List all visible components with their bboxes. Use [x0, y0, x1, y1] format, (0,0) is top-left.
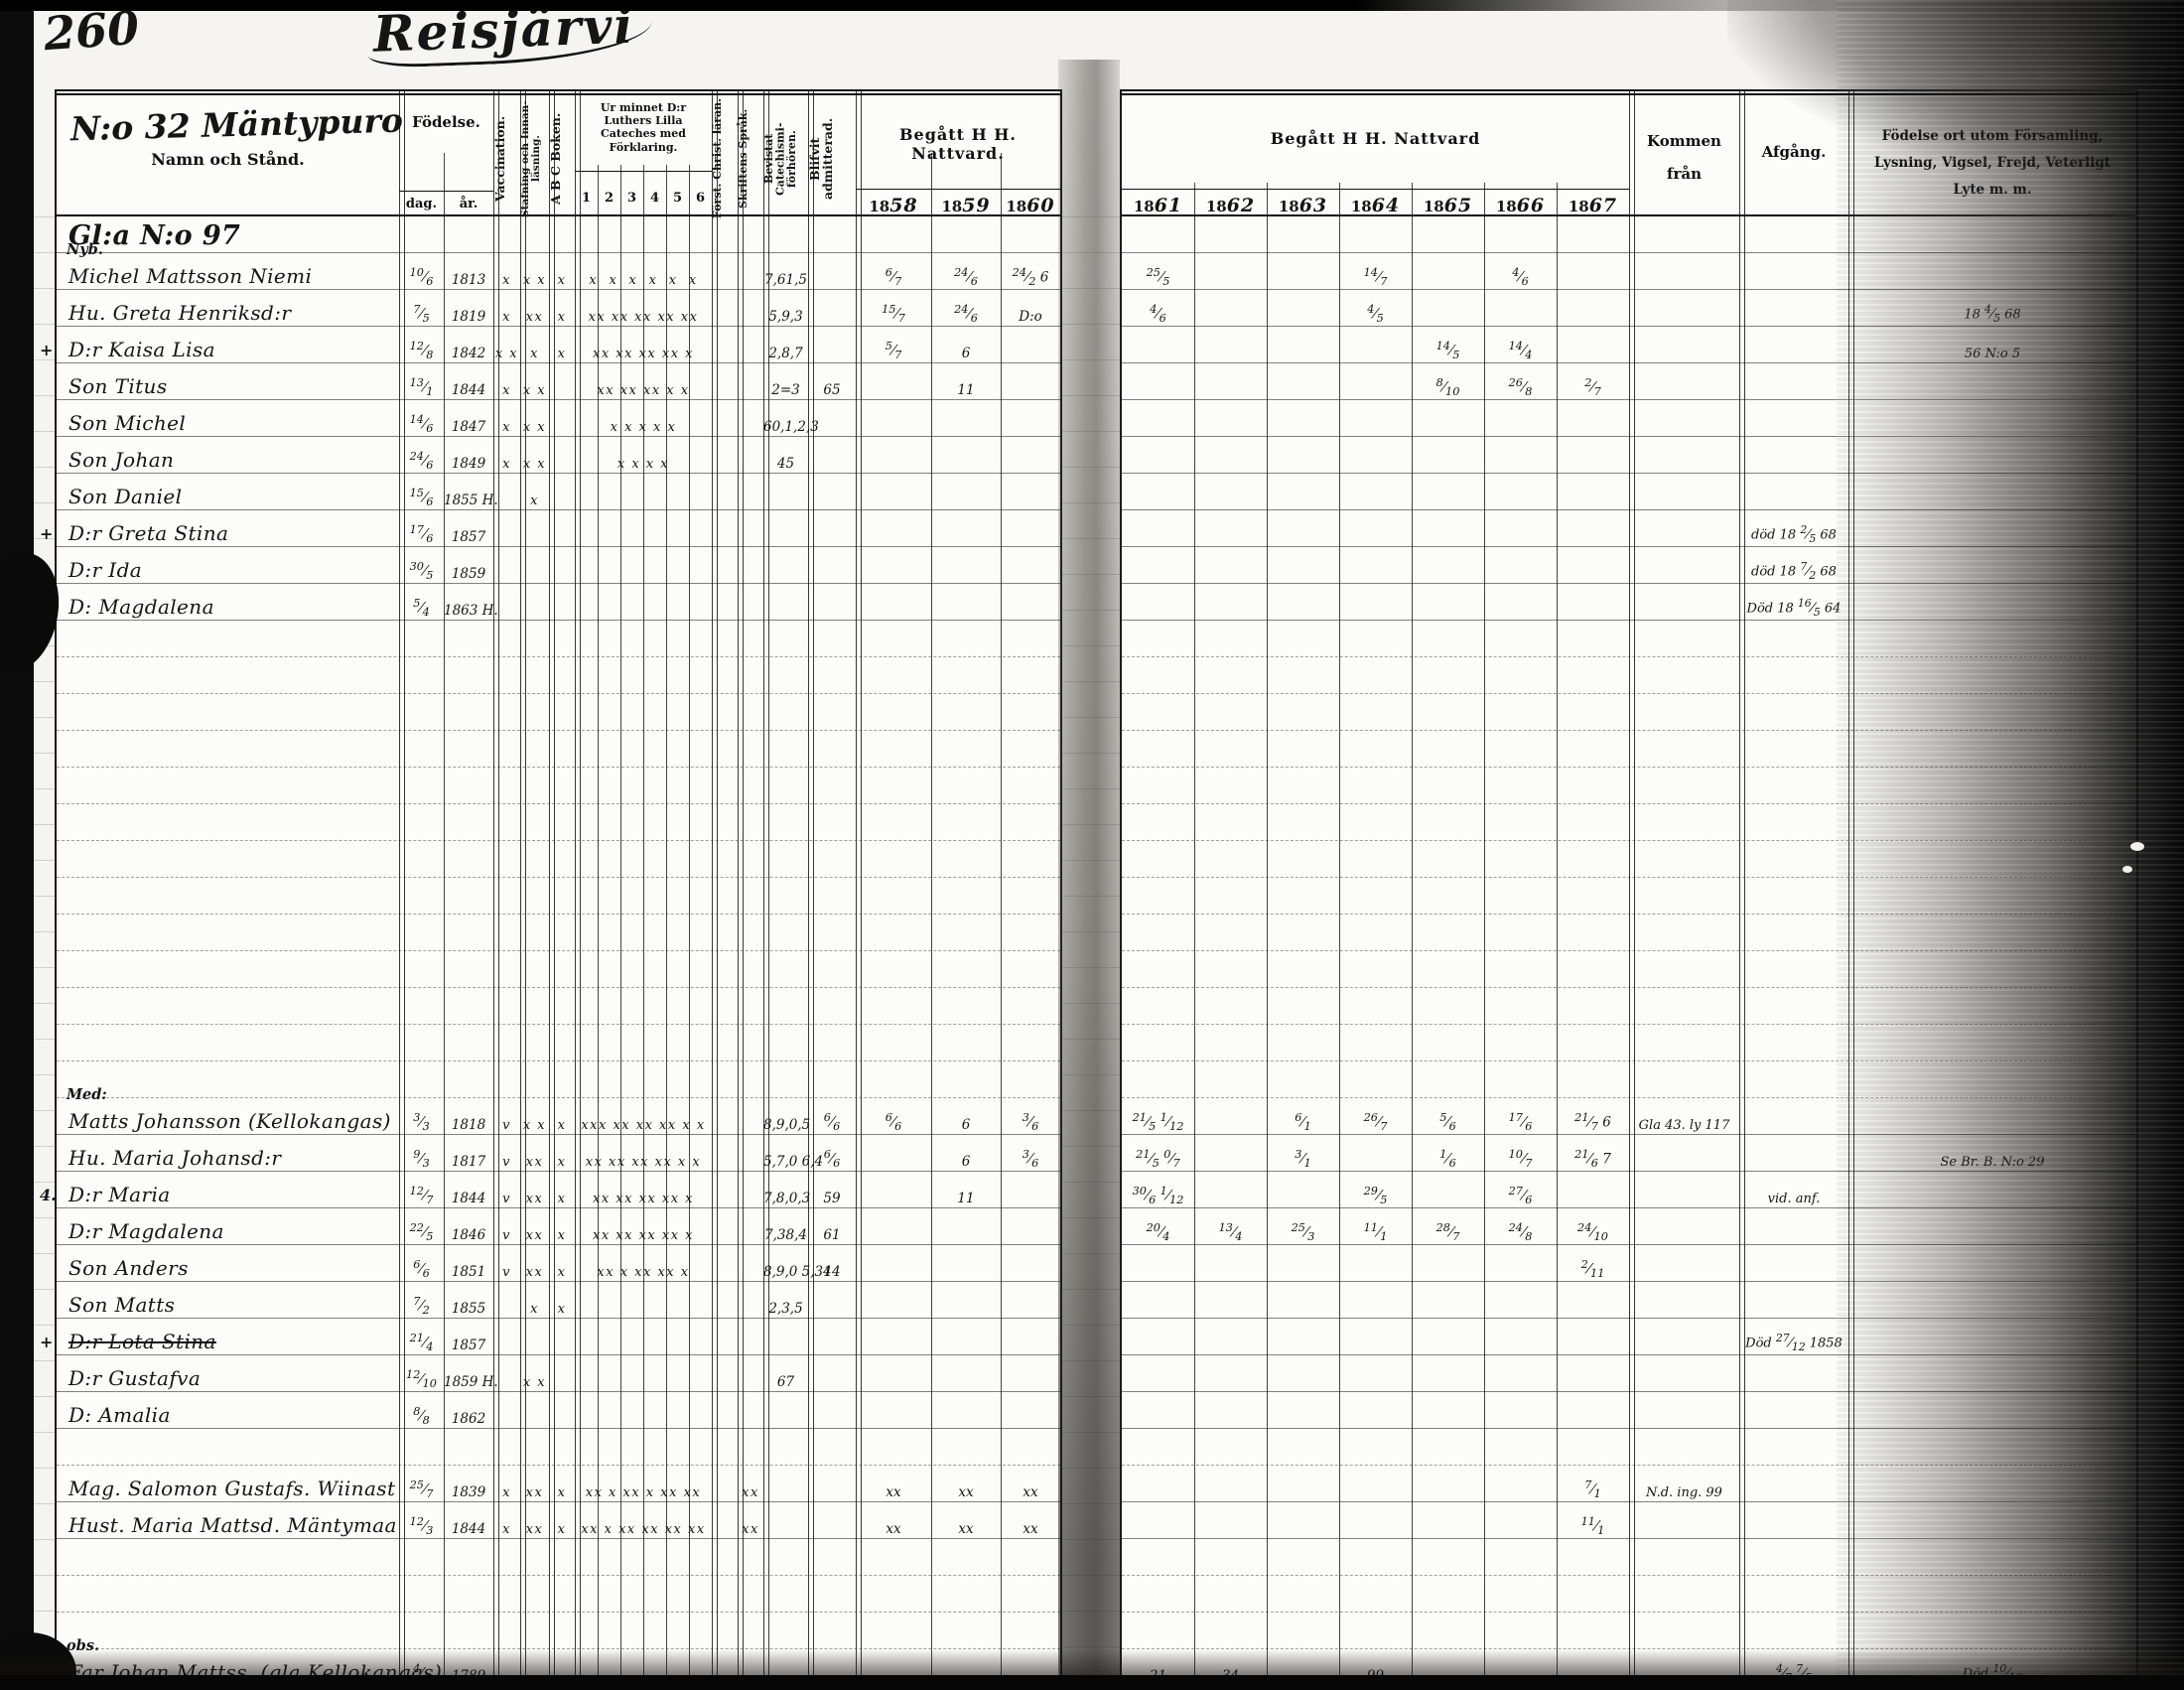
cell-cat: x x x x: [575, 457, 712, 472]
cell-staf: x x: [520, 273, 549, 288]
notes-column-header: Födelse ort utom Församling, Lysning, Vi…: [1848, 123, 2136, 204]
name-column-label: Namn och Stånd.: [57, 150, 399, 169]
cell-fh: 2,3,5: [763, 1301, 808, 1317]
cell-fh: 2,8,7: [763, 346, 808, 361]
cell-cat: xx x xx xx x: [575, 1265, 712, 1280]
table-row: Nyb.Michel Mattsson Niemi10⁄61813xx xxx …: [57, 253, 1060, 290]
left-header: N:o 32 Mäntypuro Namn och Stånd. Födelse…: [57, 89, 1060, 216]
cell-y66: 24⁄8: [1484, 1221, 1557, 1243]
scripture-column-header: Skriftens Språk.: [738, 97, 763, 220]
cell-staf: x: [520, 347, 549, 361]
year-1867: 1867: [1557, 195, 1629, 216]
cell-y58: xx: [856, 1521, 931, 1537]
table-row: [1122, 1061, 2136, 1098]
cell-day: 17⁄6: [399, 523, 444, 545]
person-name: D:r Greta Stina: [57, 521, 411, 545]
cell-y59: xx: [931, 1521, 1001, 1537]
cell-day: 24⁄6: [399, 450, 444, 472]
cell-ad: 65: [808, 382, 856, 398]
cell-vac: x x: [493, 347, 520, 361]
table-row: [1122, 988, 2136, 1025]
cell-ad: 6⁄6: [808, 1148, 856, 1170]
departure-column-header: Afgång.: [1739, 143, 1848, 161]
table-row: [57, 841, 1060, 878]
cell-y67: 2⁄11: [1557, 1258, 1629, 1280]
person-name: D:r Lota Stina: [57, 1330, 411, 1353]
cell-yr: 1817: [444, 1154, 493, 1170]
table-row: [1122, 1576, 2136, 1613]
cell-staf: xx: [520, 1155, 549, 1170]
cell-day: 12⁄8: [399, 340, 444, 361]
table-row: [1122, 621, 2136, 657]
cell-y60: xx: [1001, 1521, 1060, 1537]
abc-label: A B C Boken.: [549, 97, 575, 220]
table-row: Mag. Salomon Gustafs. Wiinast25⁄71839xxx…: [57, 1466, 1060, 1502]
cell-vac: x: [493, 1485, 520, 1500]
cell-y61: 21⁄5 1⁄12: [1122, 1111, 1194, 1133]
cell-cat: xx xx xx xx x: [575, 347, 712, 361]
cell-yr: 1844: [444, 1521, 493, 1537]
cell-y58: 6⁄7: [856, 266, 931, 288]
paper-speck: [2122, 866, 2132, 873]
cell-vac: x: [493, 420, 520, 435]
cell-ad: 14: [808, 1264, 856, 1280]
table-row: +D: Magdalena5⁄41863 H.: [57, 584, 1060, 621]
cell-y59: 24⁄6: [931, 266, 1001, 288]
table-row: 4.D:r Maria12⁄71844vxxxxx xx xx xx x7,8,…: [57, 1172, 1060, 1208]
cell-cat: x x x x x x: [575, 273, 712, 288]
table-row: Död 18 16⁄5 64: [1122, 584, 2136, 621]
table-row: [1122, 474, 2136, 510]
birth-year-label: år.: [444, 197, 493, 211]
communion-title-left: Begått H H. Nattvard.: [856, 125, 1060, 163]
cell-day: 13⁄1: [399, 376, 444, 398]
cell-yr: 1851: [444, 1264, 493, 1280]
table-row: [1122, 1429, 2136, 1466]
table-row: [1122, 1539, 2136, 1576]
cell-abc: x: [549, 1155, 575, 1170]
catechism-col-2: 2: [598, 191, 620, 206]
cell-staf: xx: [520, 1192, 549, 1206]
admitted-column-header: Blifvit admitterad.: [808, 97, 856, 220]
vaccination-label: Vaccination.: [493, 97, 520, 220]
cell-cat: xx x xx xx xx xx: [575, 1522, 712, 1537]
cell-day: 8⁄8: [399, 1405, 444, 1427]
table-row: D: Amalia8⁄81862: [57, 1392, 1060, 1429]
table-row: 11⁄1: [1122, 1502, 2136, 1539]
cell-yr: 1846: [444, 1227, 493, 1243]
cell-staf: x x: [520, 383, 549, 398]
cell-day: 21⁄4: [399, 1332, 444, 1353]
cell-y64: 11⁄1: [1339, 1221, 1412, 1243]
christ-label: Först. Christ. läran.: [712, 97, 738, 220]
right-page: Begått H H. Nattvard 1861 1862 1863 1864…: [1120, 89, 2138, 1690]
table-row: [1122, 731, 2136, 768]
person-name: D:r Maria: [57, 1183, 411, 1206]
person-name: Son Anders: [57, 1256, 411, 1280]
table-row: +D:r Lota Stina21⁄41857: [57, 1319, 1060, 1355]
cell-yr: 1839: [444, 1484, 493, 1500]
left-page: N:o 32 Mäntypuro Namn och Stånd. Födelse…: [55, 89, 1062, 1690]
person-name: Michel Mattsson Niemi: [57, 264, 411, 288]
table-row: [1122, 216, 2136, 253]
cell-vac: x: [493, 273, 520, 288]
table-row: [1122, 1025, 2136, 1061]
cell-afg: vid. anf.: [1739, 1193, 1848, 1206]
cell-y63: 6⁄1: [1267, 1111, 1339, 1133]
cell-y60: 3⁄6: [1001, 1148, 1060, 1170]
table-row: [1122, 804, 2136, 841]
birth-subrow-line: [399, 191, 493, 192]
cell-vac: x: [493, 457, 520, 472]
cell-fh: 7,38,4: [763, 1227, 808, 1243]
cell-yr: 1849: [444, 456, 493, 472]
cell-vac: x: [493, 310, 520, 325]
cell-y60: D:o: [1001, 309, 1060, 325]
birth-label: Födelse.: [399, 113, 493, 153]
table-row: [1122, 657, 2136, 694]
cell-y67: 11⁄1: [1557, 1515, 1629, 1537]
cell-fh: 7,61,5: [763, 272, 808, 288]
cell-y63: 25⁄3: [1267, 1221, 1339, 1243]
table-row: [57, 768, 1060, 804]
exams-label: Bevistat Catechismi-förhören.: [763, 97, 808, 220]
year-1864: 1864: [1339, 195, 1412, 216]
cell-sp: xx: [738, 1485, 763, 1500]
cell-y60: xx: [1001, 1484, 1060, 1500]
table-row: Hu. Maria Johansd:r9⁄31817vxxxxx xx xx x…: [57, 1135, 1060, 1172]
catechism-subrow-line: [575, 171, 712, 172]
cell-y65: 5⁄6: [1412, 1111, 1484, 1133]
cell-y67: 21⁄6 7: [1557, 1148, 1629, 1170]
cell-y64: 14⁄7: [1339, 266, 1412, 288]
table-row: 20⁄413⁄425⁄311⁄128⁄724⁄824⁄10: [1122, 1208, 2136, 1245]
right-header: Begått H H. Nattvard 1861 1862 1863 1864…: [1122, 89, 2136, 216]
table-row: Son Daniel15⁄61855 H.x: [57, 474, 1060, 510]
cell-y63: 3⁄1: [1267, 1148, 1339, 1170]
year-1863: 1863: [1267, 195, 1339, 216]
household-number: N:o 32 Mäntypuro: [70, 101, 400, 149]
table-row: [57, 1429, 1060, 1466]
scan-edge-left: [0, 0, 34, 1690]
margin-mark: +: [40, 1333, 53, 1351]
cell-y61: 21⁄5 0⁄7: [1122, 1148, 1194, 1170]
scan-edge-top: [0, 0, 2184, 11]
cell-afg: död 18 7⁄2 68: [1739, 561, 1848, 582]
cell-abc: x: [549, 347, 575, 361]
cell-y58: xx: [856, 1484, 931, 1500]
table-row: [57, 1061, 1060, 1098]
cell-yr: 1847: [444, 419, 493, 435]
cell-ad: 6⁄6: [808, 1111, 856, 1133]
left-page-body: Gl:a N:o 97Nyb.Michel Mattsson Niemi10⁄6…: [57, 216, 1060, 1690]
cell-fh: 45: [763, 456, 808, 472]
catechism-title: Ur minnet D:r Luthers Lilla Cateches med…: [577, 101, 710, 169]
cell-day: 15⁄6: [399, 487, 444, 508]
cell-day: 7⁄5: [399, 303, 444, 325]
table-row: 7⁄1N.d. ing. 99: [1122, 1466, 2136, 1502]
table-row: 25⁄514⁄74⁄6: [1122, 253, 2136, 290]
communion-subrow-line: [856, 189, 1060, 190]
cell-staf: x x: [520, 1118, 549, 1133]
cell-not: 18 4⁄5 68: [1848, 304, 2136, 325]
table-row: [57, 1613, 1060, 1649]
scan-edge-bottom-fade: [0, 1649, 2184, 1675]
cell-y61: 4⁄6: [1122, 303, 1194, 325]
table-row: [57, 878, 1060, 915]
cell-day: 12⁄10: [399, 1368, 444, 1390]
cell-y66: 27⁄6: [1484, 1185, 1557, 1206]
table-row: Son Titus13⁄11844xx xxx xx xx x x2=36511: [57, 363, 1060, 400]
cell-y67: 7⁄1: [1557, 1479, 1629, 1500]
cell-yr: 1844: [444, 1191, 493, 1206]
table-row: död 18 2⁄5 68: [1122, 510, 2136, 547]
table-row: [57, 1539, 1060, 1576]
cell-y59: 11: [931, 1191, 1001, 1206]
cell-kom: N.d. ing. 99: [1629, 1486, 1739, 1500]
table-row: Son Michel14⁄61847xx xx x x x x60,1,2,3: [57, 400, 1060, 437]
table-row: Med:Matts Johansson (Kellokangas)3⁄31818…: [57, 1098, 1060, 1135]
year-1859: 1859: [931, 195, 1001, 216]
catechism-col-5: 5: [666, 191, 689, 206]
table-row: [57, 657, 1060, 694]
table-row: [57, 951, 1060, 988]
table-row: [1122, 841, 2136, 878]
cell-cat: xx xx xx x x: [575, 383, 712, 398]
cell-fh: 2=3: [763, 382, 808, 398]
cell-vac: v: [493, 1155, 520, 1170]
table-row: D:r Gustafva12⁄101859 H.x x67: [57, 1355, 1060, 1392]
vaccination-column-header: Vaccination.: [493, 97, 520, 220]
cell-ad: 61: [808, 1227, 856, 1243]
cell-cat: xx xx xx xx x x: [575, 1155, 712, 1170]
cell-day: 12⁄7: [399, 1185, 444, 1206]
cell-day: 3⁄3: [399, 1111, 444, 1133]
cell-y66: 4⁄6: [1484, 266, 1557, 288]
table-row: [57, 694, 1060, 731]
admitted-label: Blifvit admitterad.: [808, 97, 856, 220]
table-row: Son Johan24⁄61849xx xx x x x45: [57, 437, 1060, 474]
cell-y59: 11: [931, 382, 1001, 398]
cell-cat: xx xx xx xx x: [575, 1192, 712, 1206]
right-page-body: 25⁄514⁄74⁄64⁄64⁄518 4⁄5 6814⁄514⁄456 N:o…: [1122, 216, 2136, 1690]
year-1865: 1865: [1412, 195, 1484, 216]
cell-afg: Död 27⁄12 1858: [1739, 1333, 1848, 1353]
cell-fh: 7,8,0,3: [763, 1191, 808, 1206]
cell-y61: 25⁄5: [1122, 266, 1194, 288]
cell-fh: 5,9,3: [763, 309, 808, 325]
person-name: Son Titus: [57, 374, 411, 398]
table-row: 2⁄11: [1122, 1245, 2136, 1282]
cell-staf: x x: [520, 457, 549, 472]
cell-vac: x: [493, 1522, 520, 1537]
cell-yr: 1862: [444, 1411, 493, 1427]
cell-abc: x: [549, 1118, 575, 1133]
cell-y59: 24⁄6: [931, 303, 1001, 325]
margin-mark: +: [40, 341, 53, 359]
from-column-header: Kommen från: [1629, 125, 1739, 191]
table-row: [57, 1576, 1060, 1613]
person-name: D:r Kaisa Lisa: [57, 338, 411, 361]
person-name: Son Daniel: [57, 485, 411, 508]
cell-y64: 4⁄5: [1339, 303, 1412, 325]
cell-y64: 26⁄7: [1339, 1111, 1412, 1133]
cell-y59: xx: [931, 1484, 1001, 1500]
year-1866: 1866: [1484, 195, 1557, 216]
cell-sp: xx: [738, 1522, 763, 1537]
cell-vac: v: [493, 1192, 520, 1206]
cell-yr: 1863 H.: [444, 603, 493, 619]
cell-vac: v: [493, 1228, 520, 1243]
cell-fh: 8,9,0 5,34: [763, 1264, 808, 1280]
cell-yr: 1857: [444, 1338, 493, 1353]
birth-day-label: dag.: [399, 197, 444, 211]
person-name: Matts Johansson (Kellokangas): [57, 1109, 411, 1133]
cell-yr: 1842: [444, 346, 493, 361]
table-row: [57, 804, 1060, 841]
person-name: D:r Gustafva: [57, 1366, 411, 1390]
cell-abc: x: [549, 1522, 575, 1537]
table-row: Son Anders6⁄61851vxxxxx x xx xx x8,9,0 5…: [57, 1245, 1060, 1282]
cell-yr: 1844: [444, 382, 493, 398]
cell-fh: 67: [763, 1374, 808, 1390]
cell-y58: 6⁄6: [856, 1111, 931, 1133]
cell-day: 5⁄4: [399, 597, 444, 619]
paper-speck: [2130, 842, 2144, 851]
cell-yr: 1813: [444, 272, 493, 288]
table-row: +D:r Ida30⁄51859: [57, 547, 1060, 584]
cell-y60: 24⁄2 6: [1001, 266, 1060, 288]
cell-yr: 1855 H.: [444, 493, 493, 508]
cell-day: 22⁄5: [399, 1221, 444, 1243]
table-row: [57, 915, 1060, 951]
cell-cat: xxx xx xx xx x x: [575, 1118, 712, 1133]
cell-day: 12⁄3: [399, 1515, 444, 1537]
table-row: [1122, 768, 2136, 804]
catechism-col-3: 3: [620, 191, 643, 206]
person-name: D:r Ida: [57, 558, 411, 582]
cell-y67: 2⁄7: [1557, 376, 1629, 398]
cell-staf: x: [520, 493, 549, 508]
cell-y58: 15⁄7: [856, 303, 931, 325]
cell-yr: 1859: [444, 566, 493, 582]
cell-day: 30⁄5: [399, 560, 444, 582]
person-name: Son Johan: [57, 448, 411, 472]
cell-abc: x: [549, 1485, 575, 1500]
table-row: [1122, 1282, 2136, 1319]
cell-day: 10⁄6: [399, 266, 444, 288]
cell-day: 25⁄7: [399, 1479, 444, 1500]
cell-y65: 8⁄10: [1412, 376, 1484, 398]
cell-staf: xx: [520, 1522, 549, 1537]
table-row: 21⁄5 0⁄73⁄11⁄610⁄721⁄6 7Se Br. B. N:o 29: [1122, 1135, 2136, 1172]
table-row: [1122, 437, 2136, 474]
cell-staf: xx: [520, 310, 549, 325]
cell-y65: 14⁄5: [1412, 340, 1484, 361]
cell-y59: 6: [931, 346, 1001, 361]
cell-y58: 5⁄7: [856, 340, 931, 361]
family-label: Nyb.: [67, 241, 103, 258]
table-row: Hust. Maria Mattsd. Mäntymaa12⁄31844xxxx…: [57, 1502, 1060, 1539]
cell-y65: 1⁄6: [1412, 1148, 1484, 1170]
person-name: Son Michel: [57, 411, 411, 435]
communion-title-right: Begått H H. Nattvard: [1122, 129, 1629, 148]
cell-day: 7⁄2: [399, 1295, 444, 1317]
reading-label: Stafning och Innan-läsning.: [520, 97, 549, 220]
cell-y64: 29⁄5: [1339, 1185, 1412, 1206]
cell-day: 14⁄6: [399, 413, 444, 435]
cell-vac: v: [493, 1118, 520, 1133]
cell-yr: 1819: [444, 309, 493, 325]
table-row: 4⁄64⁄518 4⁄5 68: [1122, 290, 2136, 327]
table-row: +D:r Greta Stina17⁄61857: [57, 510, 1060, 547]
cell-y59: 6: [931, 1117, 1001, 1133]
margin-mark: +: [40, 524, 53, 543]
family-label: Med:: [67, 1086, 107, 1103]
cell-y61: 20⁄4: [1122, 1221, 1194, 1243]
table-row: [57, 988, 1060, 1025]
person-name: Mag. Salomon Gustafs. Wiinast: [57, 1477, 411, 1500]
person-name: D:r Magdalena: [57, 1219, 411, 1243]
table-row: [1122, 1392, 2136, 1429]
table-row: [1122, 915, 2136, 951]
cell-cat: x x x x x: [575, 420, 712, 435]
person-name: D: Magdalena: [57, 595, 411, 619]
cell-y62: 13⁄4: [1194, 1221, 1267, 1243]
year-1858: 1858: [856, 195, 931, 216]
table-row: 14⁄514⁄456 N:o 5: [1122, 327, 2136, 363]
table-row: [1122, 878, 2136, 915]
cell-kom: Gla 43. ly 117: [1629, 1119, 1739, 1133]
christ-column-header: Först. Christ. läran.: [712, 97, 738, 220]
cell-y60: 3⁄6: [1001, 1111, 1060, 1133]
cell-day: 6⁄6: [399, 1258, 444, 1280]
table-row: död 18 7⁄2 68: [1122, 547, 2136, 584]
person-name: Gl:a N:o 97: [57, 220, 411, 251]
cell-yr: 1818: [444, 1117, 493, 1133]
header-name-column: N:o 32 Mäntypuro Namn och Stånd.: [57, 95, 399, 222]
cell-y61: 30⁄6 1⁄12: [1122, 1185, 1194, 1206]
catechism-col-4: 4: [643, 191, 666, 206]
margin-mark: 4.: [40, 1186, 57, 1204]
cell-yr: 1855: [444, 1301, 493, 1317]
cell-abc: x: [549, 273, 575, 288]
cell-y66: 14⁄4: [1484, 340, 1557, 361]
table-row: Son Matts7⁄21855xx2,3,5: [57, 1282, 1060, 1319]
table-row: 8⁄1026⁄82⁄7: [1122, 363, 2136, 400]
cell-fh: 8,9,0,5: [763, 1117, 808, 1133]
cell-abc: x: [549, 1265, 575, 1280]
cell-staf: xx: [520, 1228, 549, 1243]
cell-y67: 24⁄10: [1557, 1221, 1629, 1243]
cell-vac: x: [493, 383, 520, 398]
cell-cat: xx xx xx xx x: [575, 1228, 712, 1243]
cell-fh: 5,7,0 6,4: [763, 1154, 808, 1170]
scanned-parish-register: 260 Reisjärvi N:o 32 Mäntypuro Namn och …: [0, 0, 2184, 1690]
table-row: [1122, 1613, 2136, 1649]
table-row: +D:r Kaisa Lisa12⁄81842x xxxxx xx xx xx …: [57, 327, 1060, 363]
cell-afg: död 18 2⁄5 68: [1739, 524, 1848, 545]
cell-not: 56 N:o 5: [1848, 348, 2136, 361]
table-row: 30⁄6 1⁄1229⁄527⁄6vid. anf.: [1122, 1172, 2136, 1208]
communion-subrow-line-right: [1122, 189, 1629, 190]
cell-y65: 28⁄7: [1412, 1221, 1484, 1243]
cell-afg: Död 18 16⁄5 64: [1739, 598, 1848, 619]
table-row: 21⁄5 1⁄126⁄126⁄75⁄617⁄621⁄7 6Gla 43. ly …: [1122, 1098, 2136, 1135]
cell-abc: x: [549, 310, 575, 325]
cell-abc: x: [549, 1192, 575, 1206]
person-name: Hu. Greta Henriksd:r: [57, 301, 411, 325]
